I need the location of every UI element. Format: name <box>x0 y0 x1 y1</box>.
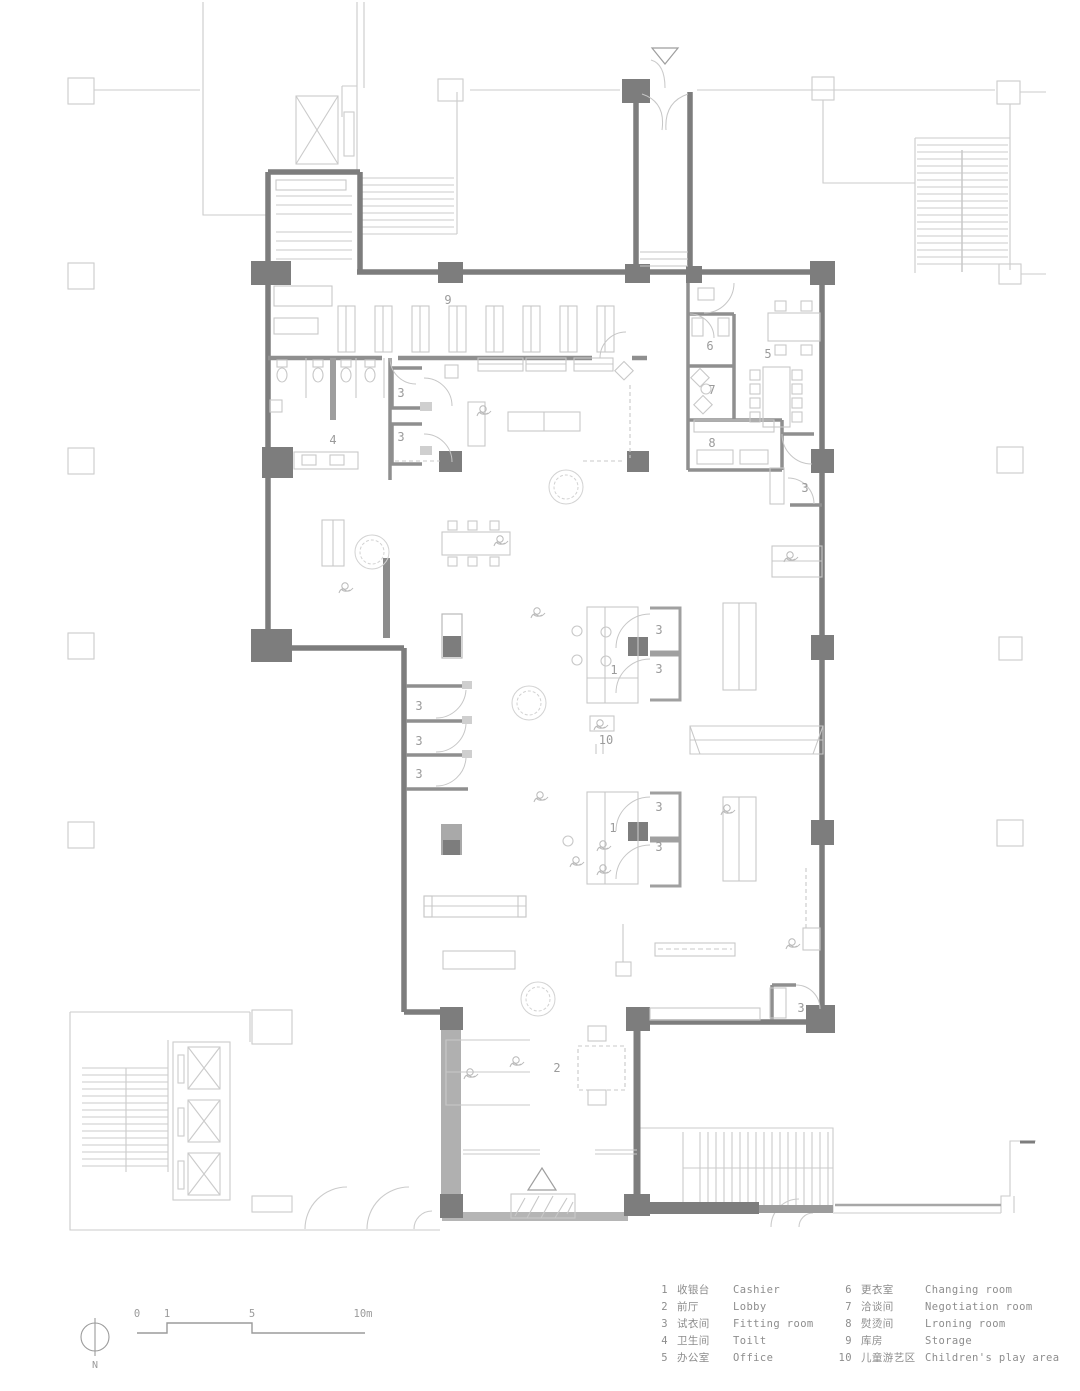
legend-row-6: 6更衣室Changing room <box>838 1282 1059 1299</box>
legend-zh: 卫生间 <box>677 1333 733 1350</box>
room-label-10: 10 <box>599 733 613 747</box>
freestanding-fixture-columns <box>441 614 462 855</box>
furniture <box>270 180 823 1154</box>
legend-zh: 办公室 <box>677 1350 733 1367</box>
legend-en: Toilt <box>733 1333 767 1350</box>
scale-tick-5: 5 <box>249 1308 255 1320</box>
legend-row-2: 2前厅Lobby <box>660 1299 814 1316</box>
north-entrance-triangle <box>652 48 678 64</box>
room-label-3: 3 <box>801 481 808 495</box>
scale-bar <box>137 1323 365 1333</box>
legend-column-1: 1收银台Cashier2前厅Lobby3试衣间Fitting room4卫生间T… <box>660 1282 814 1367</box>
legend-number: 2 <box>660 1299 668 1316</box>
room-label-3: 3 <box>397 430 404 444</box>
legend-number: 1 <box>660 1282 668 1299</box>
room-label-3: 3 <box>397 386 404 400</box>
legend-zh: 收银台 <box>677 1282 733 1299</box>
room-label-4: 4 <box>329 433 336 447</box>
room-label-1: 1 <box>610 663 617 677</box>
legend-row-9: 9库房Storage <box>838 1333 1059 1350</box>
legend-column-2: 6更衣室Changing room7洽谈间Negotiation room8熨烫… <box>838 1282 1059 1367</box>
legend-number: 5 <box>660 1350 668 1367</box>
room-label-3: 3 <box>655 840 662 854</box>
room-label-9: 9 <box>444 293 451 307</box>
room-label-7: 7 <box>708 383 715 397</box>
people-figures <box>339 406 800 1079</box>
legend-number: 3 <box>660 1316 668 1333</box>
legend-en: Fitting room <box>733 1316 814 1333</box>
lobby-left-wall <box>441 1030 461 1196</box>
room-label-5: 5 <box>764 347 771 361</box>
legend-number: 7 <box>838 1299 852 1316</box>
legend-number: 4 <box>660 1333 668 1350</box>
legend-zh: 前厅 <box>677 1299 733 1316</box>
legend-row-5: 5办公室Office <box>660 1350 814 1367</box>
legend-zh: 儿童游艺区 <box>861 1350 925 1367</box>
legend-en: Lobby <box>733 1299 767 1316</box>
scale-tick-0: 0 <box>134 1308 140 1320</box>
scale-tick-1: 1 <box>164 1308 170 1320</box>
legend-zh: 试衣间 <box>677 1316 733 1333</box>
scale-tick-10m: 10m <box>354 1308 373 1320</box>
floor-plan-drawing: 9467851110233333333333 N 0 1 5 10m <box>0 0 1080 1391</box>
legend-number: 8 <box>838 1316 852 1333</box>
legend-row-4: 4卫生间Toilt <box>660 1333 814 1350</box>
legend-row-7: 7洽谈间Negotiation room <box>838 1299 1059 1316</box>
context-structures <box>68 2 1046 1230</box>
room-label-3: 3 <box>415 734 422 748</box>
legend-en: Changing room <box>925 1282 1012 1299</box>
legend-zh: 洽谈间 <box>861 1299 925 1316</box>
north-arrow <box>81 1318 109 1356</box>
legend-en: Lroning room <box>925 1316 1006 1333</box>
room-label-8: 8 <box>708 436 715 450</box>
legend-zh: 熨烫间 <box>861 1316 925 1333</box>
room-label-3: 3 <box>655 800 662 814</box>
legend-zh: 更衣室 <box>861 1282 925 1299</box>
legend-en: Office <box>733 1350 773 1367</box>
legend-number: 6 <box>838 1282 852 1299</box>
main-entrance-triangle <box>528 1168 556 1190</box>
legend-row-1: 1收银台Cashier <box>660 1282 814 1299</box>
room-label-3: 3 <box>415 699 422 713</box>
room-label-1: 1 <box>609 821 616 835</box>
room-label-2: 2 <box>553 1061 560 1075</box>
north-label: N <box>92 1360 98 1371</box>
legend-en: Cashier <box>733 1282 780 1299</box>
entrance-markers <box>528 48 678 1190</box>
legend-number: 9 <box>838 1333 852 1350</box>
room-label-3: 3 <box>655 623 662 637</box>
legend-zh: 库房 <box>861 1333 925 1350</box>
room-label-3: 3 <box>415 767 422 781</box>
floor-plan-page: 9467851110233333333333 N 0 1 5 10m 1收银台C… <box>0 0 1080 1391</box>
room-label-6: 6 <box>706 339 713 353</box>
legend-en: Storage <box>925 1333 972 1350</box>
room-label-3: 3 <box>797 1001 804 1015</box>
legend-en: Children's play area <box>925 1350 1059 1367</box>
room-label-3: 3 <box>655 662 662 676</box>
legend-number: 10 <box>838 1350 852 1367</box>
legend-row-3: 3试衣间Fitting room <box>660 1316 814 1333</box>
legend-row-8: 8熨烫间Lroning room <box>838 1316 1059 1333</box>
legend-row-10: 10儿童游艺区Children's play area <box>838 1350 1059 1367</box>
legend-en: Negotiation room <box>925 1299 1033 1316</box>
